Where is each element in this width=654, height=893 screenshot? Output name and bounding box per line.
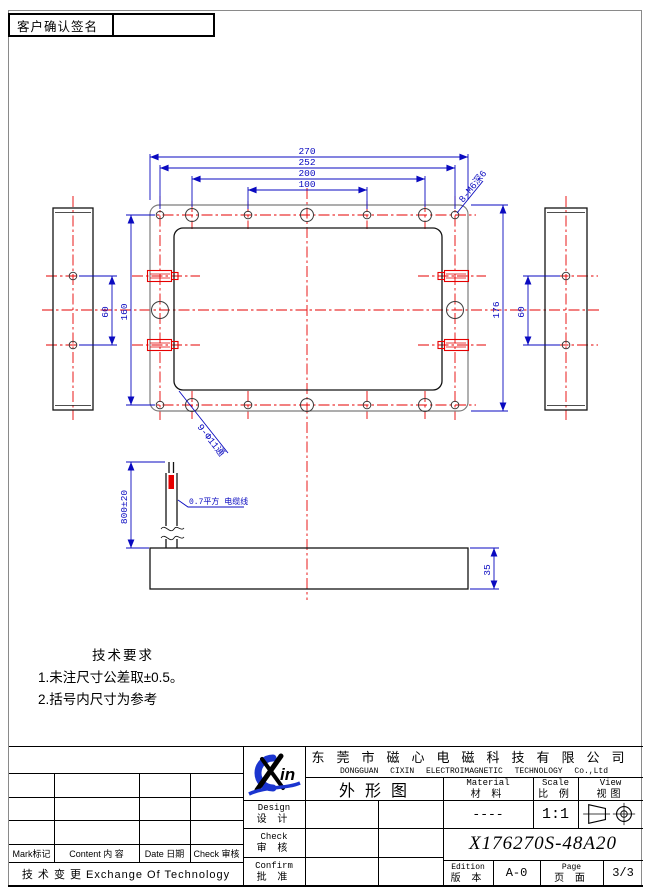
dim-176: 176 [491, 301, 502, 318]
svg-text:in: in [280, 765, 295, 784]
dim-270: 270 [298, 146, 315, 157]
check-label: Check审 核 [243, 828, 305, 857]
note-through-holes: 9-Φ11通 [195, 422, 227, 459]
dim-200: 200 [298, 168, 315, 179]
dim-cable-length: 800±20 [119, 490, 130, 525]
drawing-sheet: 客户确认签名 [0, 0, 654, 893]
centerlines [42, 188, 600, 600]
cable-red-wire [169, 475, 175, 489]
note-thread-holes: 8-M6深6 [457, 168, 490, 205]
dim-60-right: 60 [516, 306, 527, 318]
revision-date-header: Date 日期 [139, 844, 190, 862]
front-view [148, 205, 469, 412]
cixin-logo-icon: in [246, 750, 302, 798]
revision-check-header: Check 审核 [190, 844, 243, 862]
tech-requirement-1: 1.未注尺寸公差取±0.5。 [38, 667, 183, 689]
first-angle-projection-icon [580, 801, 642, 827]
material-header: Material材 料 [443, 777, 533, 800]
part-number: X176270S-48A20 [443, 828, 643, 860]
company-name-en: DONGGUAN CIXIN ELECTROIMAGNETIC TECHNOLO… [307, 765, 641, 777]
dimensions: 270 252 200 100 160 176 60 60 35 800±20 … [79, 146, 560, 589]
edition-value: A-0 [493, 860, 540, 886]
design-signature-field [305, 800, 378, 886]
view-header: View视图 [578, 777, 643, 800]
design-label: Design设 计 [243, 800, 305, 828]
revision-mark-header: Mark标记 [9, 844, 54, 862]
dim-160: 160 [119, 303, 130, 320]
revision-content-header: Content 内 容 [54, 844, 139, 862]
dim-60-left: 60 [100, 306, 111, 318]
note-cable: 0.7平方 电缆线 [189, 496, 248, 507]
edition-header: Edition版 本 [443, 860, 493, 886]
tech-requirement-2: 2.括号内尺寸为参考 [38, 689, 183, 711]
material-value: ---- [443, 800, 533, 828]
confirm-label: Confirm批 准 [243, 857, 305, 886]
terminal-symbols [148, 271, 469, 351]
dim-100: 100 [298, 179, 315, 190]
company-name-cn: 东莞市磁心电磁科技有限公司 [307, 747, 641, 766]
projection-symbol [578, 800, 643, 828]
dim-35: 35 [482, 564, 493, 576]
cable-detail [161, 462, 184, 548]
dim-252: 252 [298, 157, 315, 168]
company-logo: in [243, 747, 305, 800]
design-date-field [378, 800, 443, 886]
bottom-view [150, 548, 468, 589]
page-header: Page页 面 [540, 860, 603, 886]
scale-header: Scale比 例 [533, 777, 578, 800]
technical-requirements: 技术要求 1.未注尺寸公差取±0.5。 2.括号内尺寸为参考 [38, 645, 183, 711]
tech-requirements-title: 技术要求 [38, 645, 183, 667]
document-type: 外形图 [305, 777, 443, 800]
page-value: 3/3 [603, 860, 643, 886]
scale-value: 1:1 [533, 800, 578, 828]
exchange-of-technology-row: 技 术 变 更 Exchange Of Technology [9, 862, 243, 885]
